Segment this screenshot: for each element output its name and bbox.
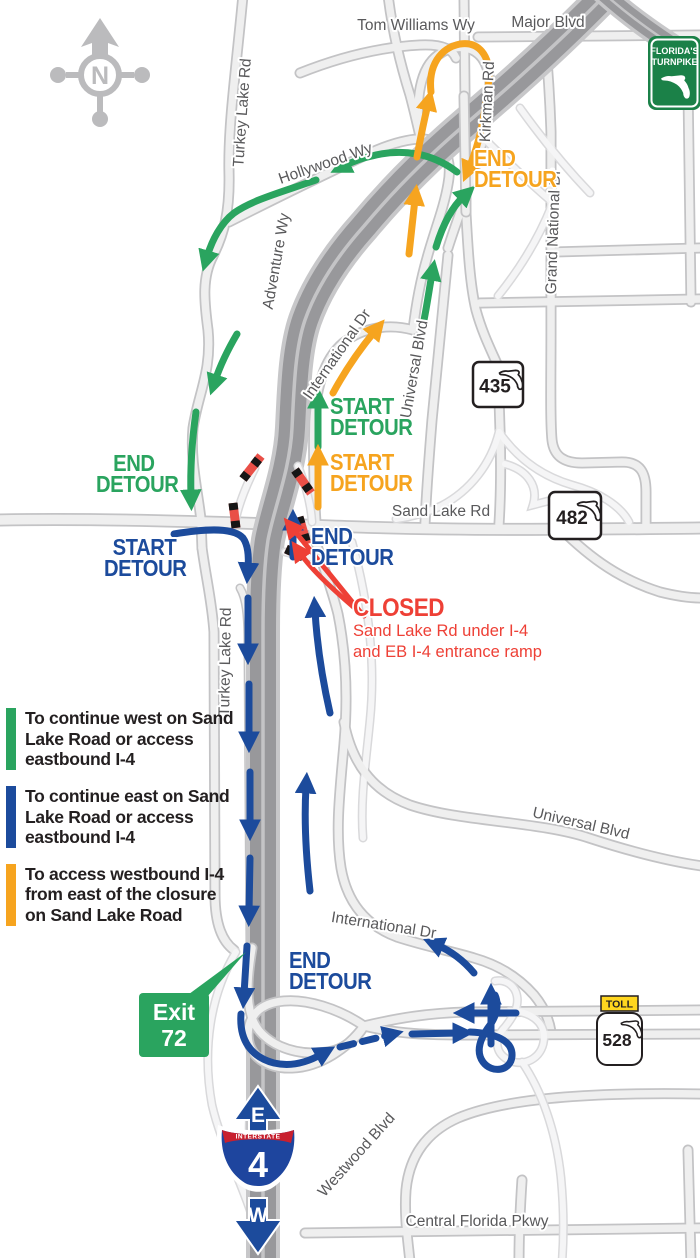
compass-n-letter: N xyxy=(91,62,109,90)
legend-swatch-green xyxy=(6,708,16,770)
detour-line: DETOUR xyxy=(289,971,371,992)
label-international-lower: International Dr xyxy=(330,909,437,942)
start-detour-label-blue: START DETOUR xyxy=(104,537,185,580)
i4-direction-marker: E W INTERSTATE 4 xyxy=(217,1086,299,1254)
legend-item-orange: To access westbound I-4 from east of the… xyxy=(6,864,237,926)
sr-435-number: 435 xyxy=(479,377,511,398)
detour-line: DETOUR xyxy=(96,474,172,495)
detour-map: Turkey Lake Rd Tom Williams Wy Major Blv… xyxy=(0,0,700,1258)
legend-text: To continue east on Sand Lake Road or ac… xyxy=(25,786,237,848)
label-sand-lake: Sand Lake Rd xyxy=(392,503,490,520)
road-grid-h2 xyxy=(480,299,700,303)
end-detour-label-green: END DETOUR xyxy=(96,453,172,496)
i4-east-letter: E xyxy=(251,1104,265,1127)
road-cfp-v2 xyxy=(688,1150,691,1258)
legend: To continue west on Sand Lake Road or ac… xyxy=(6,708,237,942)
sr-435-shield: 435 xyxy=(473,362,523,407)
legend-text: To continue west on Sand Lake Road or ac… xyxy=(25,708,237,770)
road-network-under xyxy=(0,0,700,1258)
sr-482-number: 482 xyxy=(556,508,588,529)
road-network-under-fill xyxy=(0,0,700,1258)
label-kirkman: Kirkman Rd xyxy=(477,61,498,143)
legend-swatch-blue xyxy=(6,786,16,848)
detour-line: DETOUR xyxy=(104,558,185,579)
detour-line: DETOUR xyxy=(311,547,393,568)
toll-528-shield: TOLL 528 xyxy=(597,996,642,1065)
map-canvas: Turkey Lake Rd Tom Williams Wy Major Blv… xyxy=(0,0,700,1258)
end-detour-label-blue-bottom: END DETOUR xyxy=(289,950,371,993)
label-westwood: Westwood Blvd xyxy=(315,1110,399,1201)
label-major-blvd: Major Blvd xyxy=(511,14,584,31)
detour-line: DETOUR xyxy=(330,473,412,494)
closed-title: CLOSED xyxy=(353,596,523,621)
toll-banner: TOLL xyxy=(606,999,634,1011)
road-frontage-right xyxy=(352,542,372,838)
legend-text: To access westbound I-4 from east of the… xyxy=(25,864,237,926)
start-detour-label-orange: START DETOUR xyxy=(330,452,412,495)
i4-west-letter: W xyxy=(248,1204,268,1227)
label-adventure: Adventure Wy xyxy=(260,212,294,311)
i4-interstate-shield: INTERSTATE 4 xyxy=(217,1125,299,1192)
closed-line: Sand Lake Rd under I-4 xyxy=(353,621,542,642)
turnpike-text-2: TURNPIKE xyxy=(651,57,697,67)
north-compass-icon: N xyxy=(50,18,150,127)
turnpike-text-1: FLORIDA'S xyxy=(650,46,698,56)
road-grid-h1 xyxy=(554,248,700,252)
interstate-banner: INTERSTATE xyxy=(236,1134,281,1141)
legend-item-green: To continue west on Sand Lake Road or ac… xyxy=(6,708,237,770)
road-universal-lower xyxy=(344,722,700,866)
closed-callout: CLOSED Sand Lake Rd under I-4 and EB I-4… xyxy=(353,596,542,662)
exit-word: Exit xyxy=(153,999,196,1025)
toll-528-number: 528 xyxy=(602,1030,631,1050)
road-grid-v1 xyxy=(688,88,691,302)
i4-number: 4 xyxy=(248,1144,268,1185)
end-detour-label-blue-mid: END DETOUR xyxy=(311,526,393,569)
exit-72-sign: Exit 72 xyxy=(139,952,246,1057)
label-tom-williams: Tom Williams Wy xyxy=(357,17,475,34)
label-central-florida: Central Florida Pkwy xyxy=(406,1213,549,1230)
legend-item-blue: To continue east on Sand Lake Road or ac… xyxy=(6,786,237,848)
turnpike-shield: FLORIDA'S TURNPIKE xyxy=(648,36,700,110)
sr-482-shield: 482 xyxy=(549,492,601,539)
start-detour-label-green: START DETOUR xyxy=(330,396,412,439)
closed-line: and EB I-4 entrance ramp xyxy=(353,642,542,663)
legend-swatch-orange xyxy=(6,864,16,926)
exit-number: 72 xyxy=(161,1025,187,1051)
label-turkey-lake-mid: Turkey Lake Rd xyxy=(216,607,235,716)
detour-line: DETOUR xyxy=(330,417,412,438)
detour-line: DETOUR xyxy=(474,169,556,190)
end-detour-label-orange-north: END DETOUR xyxy=(474,148,556,191)
